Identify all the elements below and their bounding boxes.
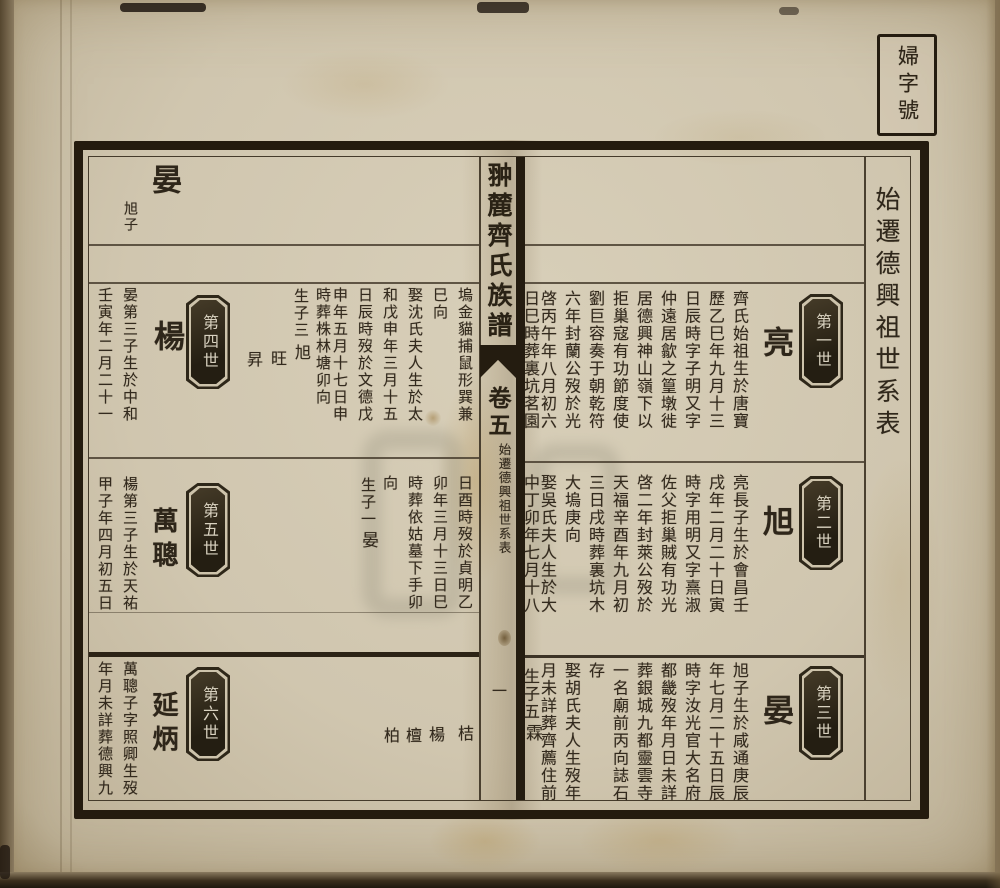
continuation-column: 日酉時歿於貞明乙 bbox=[456, 475, 471, 611]
right-paper-edge bbox=[986, 0, 1000, 888]
bio-column: 壬寅年二月二十一 bbox=[96, 287, 111, 423]
spine-page-number: 一 bbox=[490, 683, 505, 698]
sons-count-label: 生子五 bbox=[521, 668, 537, 721]
generation-label: 第三世 bbox=[813, 685, 829, 742]
spine-section-title: 始遷德興祖世系表 bbox=[497, 443, 510, 555]
bio-column: 佐父拒巢賊有功光 bbox=[658, 474, 674, 614]
volume-label-text: 婦字號 bbox=[897, 45, 918, 126]
left-dark-edge bbox=[0, 0, 14, 888]
row-rule bbox=[89, 244, 479, 246]
bio-column: 大塢庚向 bbox=[562, 474, 578, 544]
bio-column: 萬聰子字照卿生歿 bbox=[121, 661, 136, 797]
bio-column: 存 bbox=[586, 662, 602, 680]
bio-column: 旭子生於咸通庚辰 bbox=[730, 662, 746, 802]
son-name: 晏 bbox=[360, 531, 377, 548]
sons-count-label: 生子三 bbox=[292, 288, 307, 339]
generation-badge: 第五世 bbox=[186, 483, 230, 577]
generation-label: 第二世 bbox=[813, 495, 829, 552]
continuation-column: 向 bbox=[381, 475, 396, 492]
bio-column: 楊第三子生於天祐 bbox=[121, 476, 136, 612]
bio-column: 居德興神山嶺下以 bbox=[634, 290, 650, 430]
bio-column: 娶胡氏夫人生歿年 bbox=[562, 662, 578, 802]
row-rule-thick bbox=[89, 652, 479, 657]
bio-column: 亮長子生於會昌壬 bbox=[730, 474, 746, 614]
row-rule bbox=[525, 282, 864, 284]
bio-column: 仲遠居歙之篁墩徙 bbox=[658, 290, 674, 430]
row-rule bbox=[89, 457, 479, 459]
row-rule bbox=[525, 244, 864, 246]
son-name: 霖 bbox=[524, 724, 541, 741]
continuation-column: 卯年三月十三日巳 bbox=[431, 475, 446, 611]
bio-column: 晏第三子生於中和 bbox=[121, 287, 136, 423]
ancestor-name: 旭 bbox=[760, 505, 791, 536]
badge-core: 第三世 bbox=[804, 671, 838, 755]
row-rule bbox=[89, 282, 479, 284]
son-name: 旺 bbox=[268, 350, 284, 366]
spine-left-rule bbox=[479, 157, 481, 800]
continuation-column: 和戊申年三月十五 bbox=[381, 287, 396, 423]
bio-column: 年月未詳葬德興九 bbox=[96, 661, 111, 797]
sons-count-label: 生子一 bbox=[359, 477, 374, 528]
generation-label: 第五世 bbox=[200, 502, 216, 559]
bio-column: 日巳時葬裏坑茗園 bbox=[521, 290, 537, 430]
son-name: 昇 bbox=[244, 351, 260, 367]
bio-column: 娶吳氏夫人生於大 bbox=[538, 474, 554, 614]
spine-volume-label: 卷五 bbox=[486, 386, 509, 440]
bio-column: 啓二年封萊公歿於 bbox=[634, 474, 650, 614]
margin-section-title: 始遷德興祖世系表 bbox=[873, 186, 898, 442]
badge-core: 第二世 bbox=[804, 481, 838, 565]
top-edge-mark-1 bbox=[120, 3, 206, 12]
bio-column: 時字用明又字熹淑 bbox=[682, 474, 698, 614]
row-rule bbox=[525, 461, 864, 463]
badge-core: 第五世 bbox=[191, 488, 225, 572]
row-rule-faint bbox=[89, 612, 479, 613]
son-name: 檀 bbox=[403, 727, 419, 743]
volume-label-box: 婦字號 bbox=[877, 34, 937, 136]
bio-column: 日辰時字子明又字 bbox=[682, 290, 698, 430]
generation-badge: 第三世 bbox=[799, 666, 843, 760]
continuation-column: 娶沈氏夫人生於太 bbox=[406, 287, 421, 423]
son-name: 柏 bbox=[381, 727, 397, 743]
bio-column: 中丁卯年七月十八 bbox=[521, 474, 537, 614]
bio-column: 時字汝光官大名府 bbox=[682, 662, 698, 802]
bio-column: 葬銀城九都靈雲寺 bbox=[634, 662, 650, 802]
son-name: 旭 bbox=[292, 344, 308, 360]
generation-badge: 第四世 bbox=[186, 295, 230, 389]
bio-column: 六年封蘭公歿於光 bbox=[562, 290, 578, 430]
generation-badge: 第六世 bbox=[186, 667, 230, 761]
bio-column: 都畿歿年月日未詳 bbox=[658, 662, 674, 802]
son-name: 楊 bbox=[426, 726, 442, 742]
ancestor-name: 亮 bbox=[760, 326, 791, 357]
bio-column: 歷乙巳年九月十三 bbox=[706, 290, 722, 430]
badge-core: 第一世 bbox=[804, 299, 838, 383]
continuation-column: 塢金貓捕鼠形巽兼 bbox=[456, 287, 471, 423]
continuation-column: 申年五月十七日申 bbox=[331, 287, 346, 423]
bio-column: 年七月二十五日辰 bbox=[706, 662, 722, 802]
ancestor-name: 萬聰 bbox=[150, 507, 176, 575]
spine-book-title: 翀麓齊氏族譜 bbox=[485, 162, 510, 342]
generation-badge: 第二世 bbox=[799, 476, 843, 570]
margin-separator bbox=[864, 157, 866, 800]
ancestor-name: 晏 bbox=[760, 694, 791, 725]
ancestor-name: 楊 bbox=[151, 320, 182, 351]
row-rule-medium bbox=[525, 655, 864, 658]
genealogy-scan: 婦字號 始遷德興祖世系表 翀麓齊氏族譜 卷五 始遷德興祖世系表 一 第一世 亮 … bbox=[0, 0, 1000, 888]
top-edge-mark-2 bbox=[477, 2, 529, 13]
bio-column: 拒巢寇有功節度使 bbox=[610, 290, 626, 430]
bio-column: 甲子年四月初五日 bbox=[96, 476, 111, 612]
top-edge-mark-3 bbox=[779, 7, 799, 15]
badge-core: 第四世 bbox=[191, 300, 225, 384]
continuation-column: 時葬株林塘卯向 bbox=[314, 287, 329, 406]
generation-badge: 第一世 bbox=[799, 294, 843, 388]
header-relation-note: 旭子 bbox=[122, 201, 136, 233]
son-name: 桔 bbox=[455, 725, 471, 741]
bio-column: 齊氏始祖生於唐寶 bbox=[730, 290, 746, 430]
generation-label: 第四世 bbox=[200, 314, 216, 371]
table-edge bbox=[0, 872, 1000, 888]
bio-column: 三日戌時葬裏坑木 bbox=[586, 474, 602, 614]
header-ancestor-name: 晏 bbox=[148, 164, 178, 194]
badge-core: 第六世 bbox=[191, 672, 225, 756]
continuation-column: 時葬依姑墓下手卯 bbox=[406, 475, 421, 611]
continuation-column: 日辰時歿於文德戊 bbox=[356, 287, 371, 423]
bio-column: 戌年二月二十日寅 bbox=[706, 474, 722, 614]
generation-label: 第六世 bbox=[200, 686, 216, 743]
bottom-left-mark bbox=[0, 845, 10, 879]
ancestor-name: 延炳 bbox=[150, 691, 176, 759]
bio-column: 天福辛酉年九月初 bbox=[610, 474, 626, 614]
bio-column: 啓丙午年八月初六 bbox=[538, 290, 554, 430]
bio-column: 劉巨容奏于朝乾符 bbox=[586, 290, 602, 430]
bio-column: 一名廟前丙向誌石 bbox=[610, 662, 626, 802]
generation-label: 第一世 bbox=[813, 313, 829, 370]
continuation-column: 巳向 bbox=[431, 287, 446, 321]
